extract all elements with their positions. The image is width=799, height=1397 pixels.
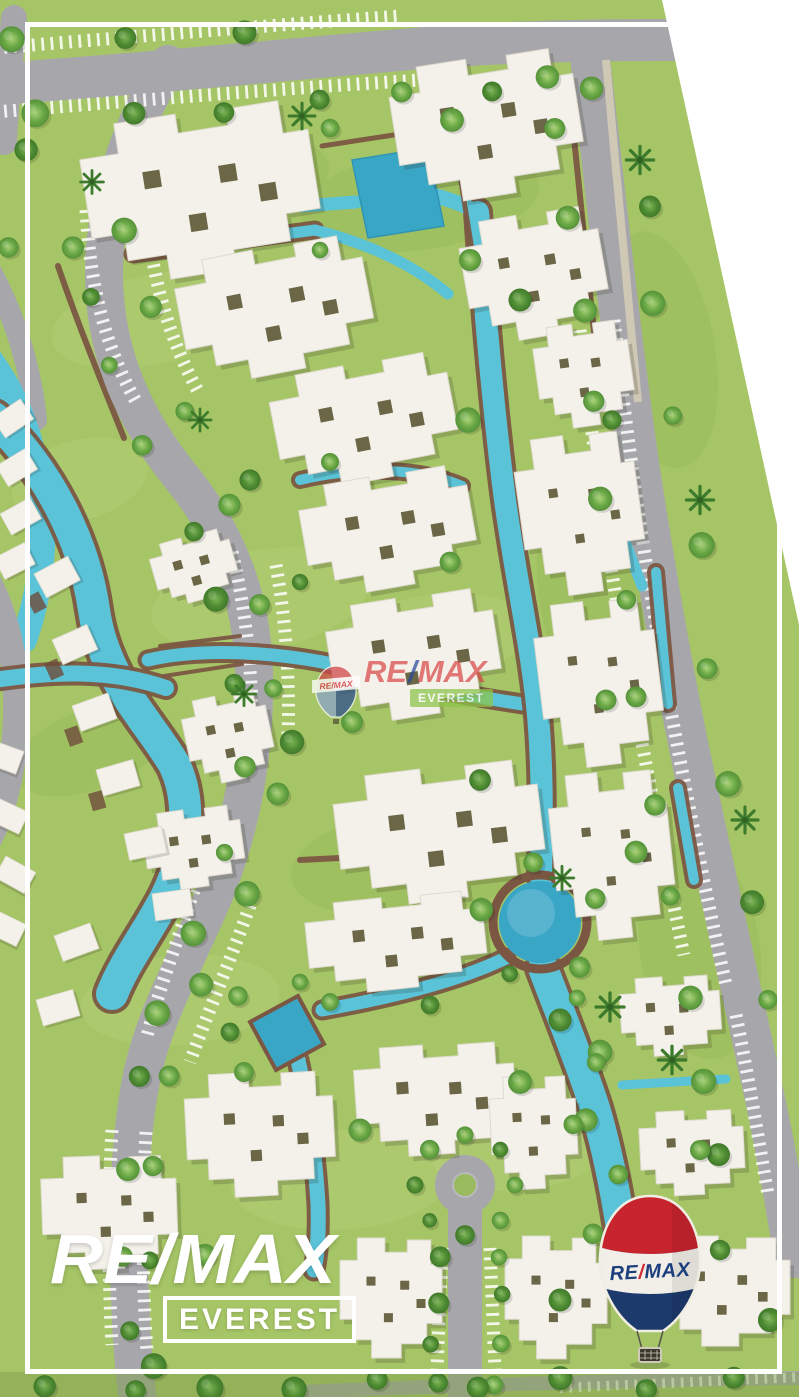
- master-plan-screenshot: RE/MAX RE/MAX EVEREST RE/MAX EVEREST RE/…: [0, 0, 799, 1397]
- watermark-max: MAX: [418, 654, 487, 689]
- remax-balloon-icon: RE/MAX: [312, 664, 360, 726]
- logo-wordmark: RE/MAX: [50, 1224, 371, 1294]
- balloon-wordmark: RE/MAX: [609, 1259, 692, 1285]
- balloon-max: MAX: [644, 1259, 692, 1283]
- watermark-re: RE: [364, 654, 407, 689]
- balloon-re: RE: [609, 1262, 639, 1285]
- remax-balloon-icon: RE/MAX: [584, 1192, 716, 1372]
- remax-everest-logo: RE/MAX EVEREST: [50, 1224, 356, 1343]
- center-watermark: RE/MAX RE/MAX EVEREST: [312, 656, 493, 726]
- watermark-everest-badge: EVEREST: [410, 689, 493, 707]
- logo-everest-box: EVEREST: [163, 1296, 356, 1343]
- logo-everest-label: EVEREST: [179, 1303, 340, 1336]
- watermark-slash: /: [407, 654, 418, 689]
- watermark-wordmark: RE/MAX EVEREST: [364, 656, 493, 707]
